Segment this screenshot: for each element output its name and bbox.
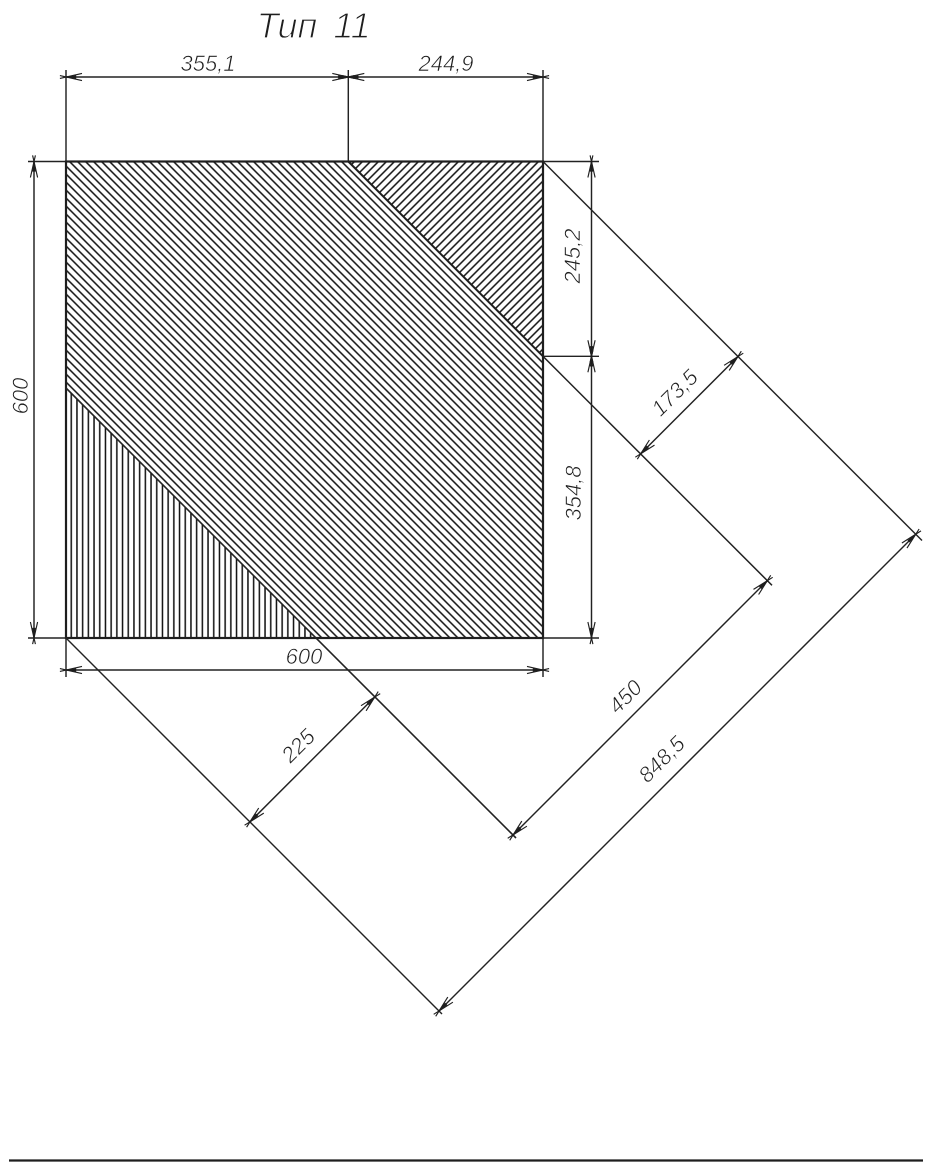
svg-text:244,9: 244,9 (417, 51, 473, 76)
svg-text:600: 600 (286, 644, 323, 669)
svg-text:600: 600 (8, 377, 33, 414)
svg-text:Тип: Тип (257, 5, 318, 46)
svg-text:11: 11 (333, 5, 370, 46)
svg-text:245,2: 245,2 (560, 228, 585, 284)
svg-text:355,1: 355,1 (180, 51, 235, 76)
svg-text:354,8: 354,8 (561, 465, 586, 521)
